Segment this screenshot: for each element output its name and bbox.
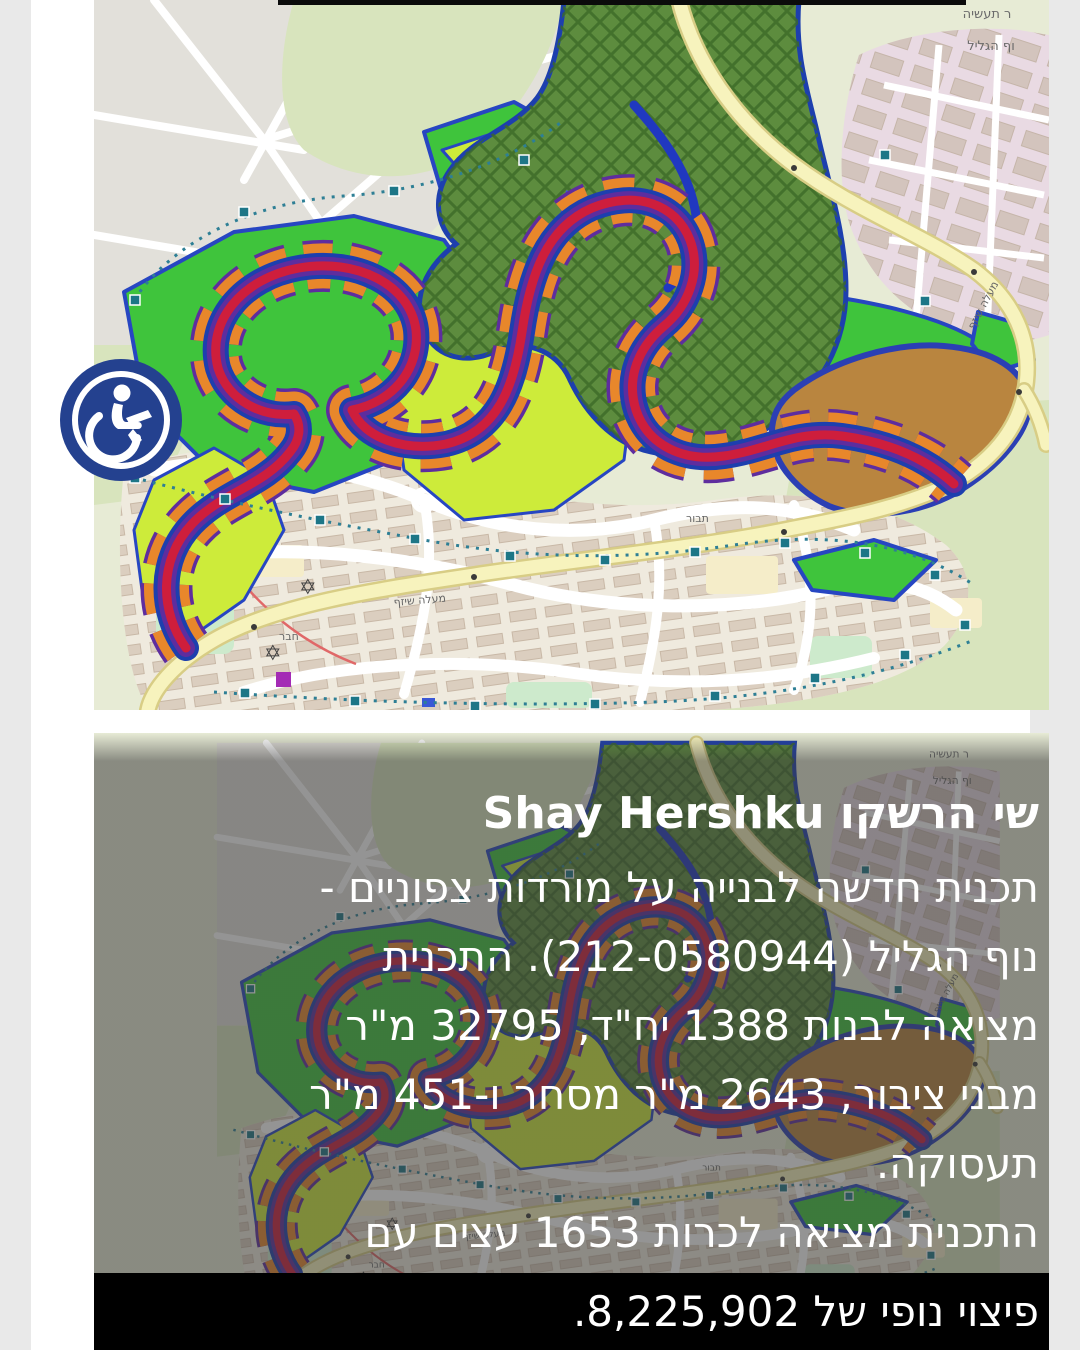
post-body-line: נוף הגליל (212-0580944). התכנית [94, 922, 1039, 991]
post-footer-line: פיצוי נופי של 8,225,902. [94, 1273, 1049, 1350]
post-author-name[interactable]: שי הרשקו Shay Hershku [94, 779, 1039, 849]
post-body-line: תעסוקה. [94, 1129, 1039, 1198]
post-body-line: התכנית מציאה לכרות 1653 עצים עם [94, 1198, 1039, 1267]
top-black-strip [278, 0, 966, 5]
post-body-line: תכנית חדשה לבנייה על מורדות צפוניים - [94, 853, 1039, 922]
plan-map-svg [94, 0, 1049, 710]
post-body-line: מבני ציבור, 2643 מ"ר מסחר ו-451 מ"ר [94, 1060, 1039, 1129]
post-body-line: מציאה לבנות 1388 יח"ד, 32795 מ"ר [94, 991, 1039, 1060]
post-card: שי הרשקו Shay Hershku תכנית חדשה לבנייה … [31, 0, 1030, 1350]
accessibility-widget-button[interactable] [59, 358, 183, 482]
plan-map-photo-top[interactable] [94, 0, 1049, 710]
post-footer-bar: פיצוי נופי של 8,225,902. [94, 1273, 1049, 1350]
post-text-overlay: שי הרשקו Shay Hershku תכנית חדשה לבנייה … [94, 733, 1049, 1267]
